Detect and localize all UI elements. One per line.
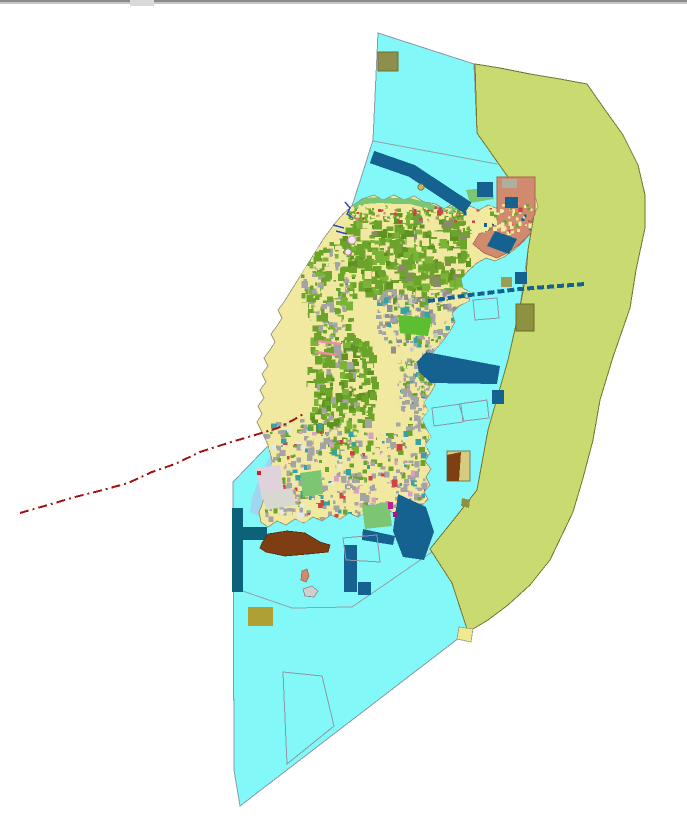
red-dot-sw (257, 471, 261, 475)
green-patch-sw (300, 470, 323, 497)
navy-rect-north (477, 182, 493, 197)
jetty-vertical-west (232, 508, 243, 592)
circle-mark-b (345, 249, 351, 255)
navy-rect-east (492, 390, 504, 404)
parcel-brown-east (447, 452, 461, 481)
khaki-small-sea (501, 277, 512, 287)
navy-rect-south (344, 545, 357, 592)
navy-square-south (358, 582, 371, 595)
navy-rect-ne-tip (505, 197, 518, 208)
map-viewport (0, 0, 687, 821)
salmon-zone-gray-patch (502, 179, 517, 188)
khaki-square-top (378, 52, 398, 71)
green-patch-south (362, 503, 392, 529)
olive-rect-sea (516, 304, 534, 331)
map-canvas[interactable] (0, 0, 687, 821)
magenta-mark-b (393, 512, 397, 517)
buoy-dot-sea (418, 184, 424, 190)
circle-mark-a (348, 236, 356, 244)
navy-square-sea-east (515, 272, 527, 284)
green-patch-east (398, 315, 432, 336)
khaki-rect-bottom (248, 607, 273, 626)
yellow-patch-junction (457, 627, 473, 642)
magenta-mark-a (388, 502, 393, 509)
jetty-arm-west (243, 527, 267, 540)
